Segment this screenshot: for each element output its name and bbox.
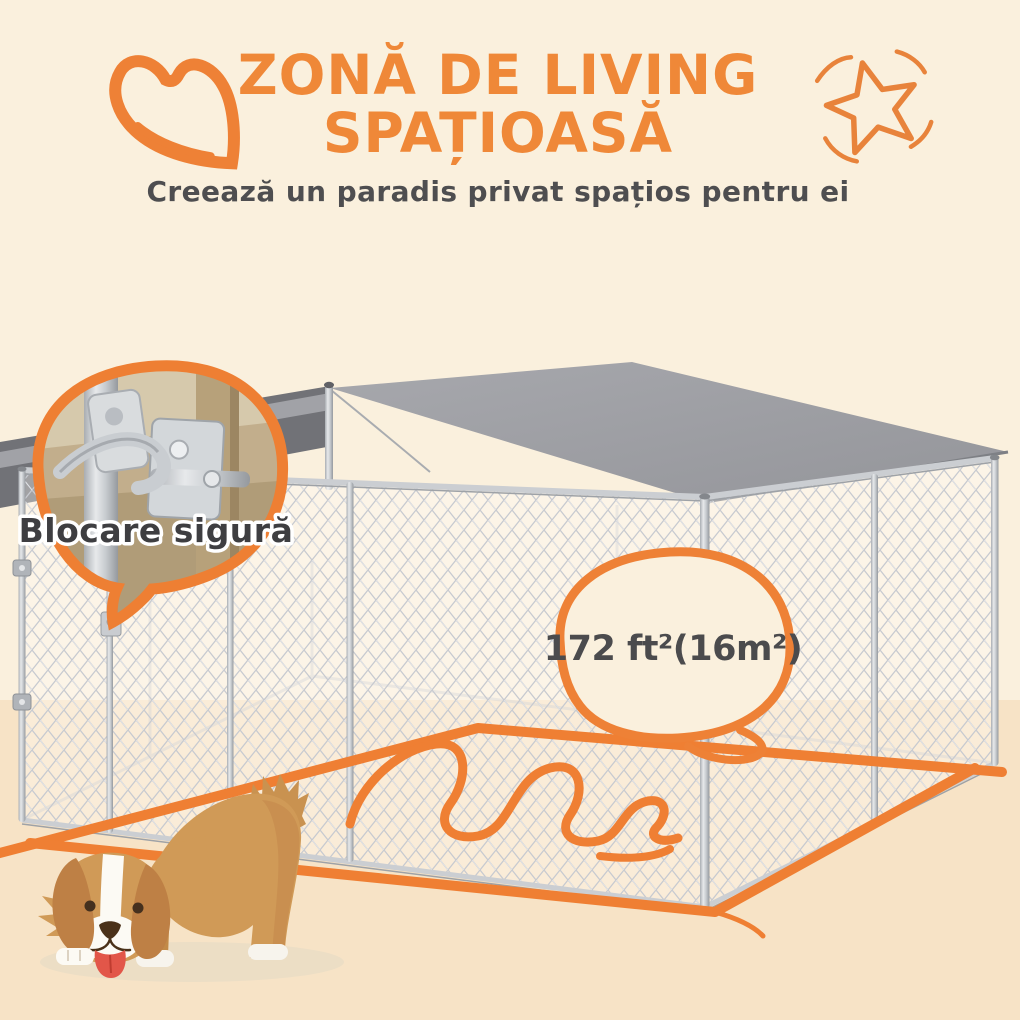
page-title: ZONĂ DE LIVING SPAȚIOASĂ	[0, 46, 996, 162]
lock-callout-label: Blocare sigură	[19, 511, 294, 550]
title-line-1: ZONĂ DE LIVING	[0, 46, 996, 104]
marketing-banner: 172 ft²(16m²)	[0, 0, 1020, 1020]
header: ZONĂ DE LIVING SPAȚIOASĂ Creează un para…	[0, 46, 996, 208]
area-callout-label: 172 ft²(16m²)	[544, 629, 803, 669]
corner-pole-right	[991, 456, 999, 766]
title-line-2: SPAȚIOASĂ	[0, 104, 996, 162]
canopy-support-pole	[325, 383, 333, 490]
page-subtitle: Creează un paradis privat spațios pentru…	[0, 175, 996, 208]
